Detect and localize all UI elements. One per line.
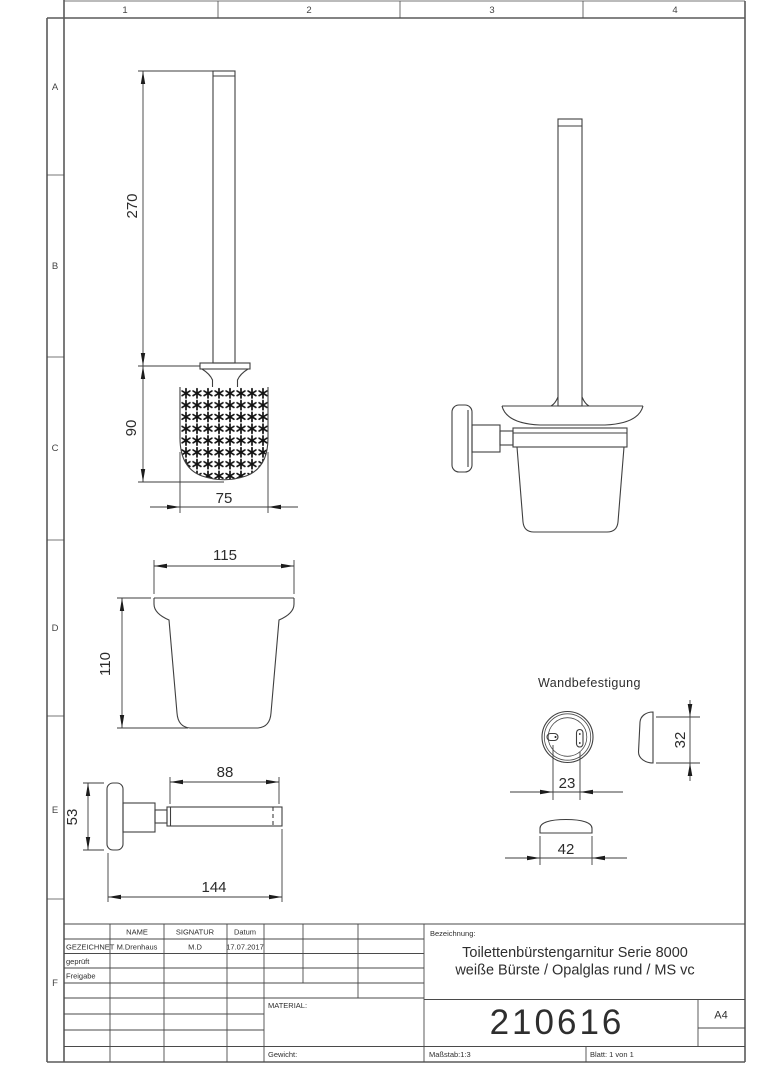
brush-head-bristles [180,387,268,480]
dim-hole-spacing: 23 [510,745,623,800]
grid-column-label: 3 [489,5,494,16]
dim-label-144: 144 [201,879,226,896]
dim-label-42: 42 [558,841,575,858]
mount-ring-outer [542,712,593,763]
dim-handle-length: 270 [124,71,213,366]
brush-handle [213,71,235,363]
brush-flange-disc [200,363,250,369]
dim-label-88: 88 [217,764,234,781]
assembly-handle [558,119,582,406]
assembly-holder-ring [513,428,627,447]
grid-row-label: A [52,82,59,93]
designation-line1: Toilettenbürstengarnitur Serie 8000 [462,945,688,961]
assembly-handle-flare [551,397,589,406]
row-gezeichnet-signatur: M.D [188,943,202,952]
assembly-glass [517,447,624,532]
mount-hole-left-dot [555,736,557,738]
header-name: NAME [126,928,148,937]
holder-arm [167,807,282,826]
row-gezeichnet-datum: 17.07.2017 [226,943,264,952]
gewicht-label: Gewicht: [268,1050,297,1059]
view-holder-side: 88 53 144 [64,764,282,902]
grid-column-label: 4 [672,5,677,16]
view-wall-mount-detail: Wandbefestigung 23 32 [505,676,700,865]
assembly-lid [502,406,643,425]
wall-mount-title: Wandbefestigung [538,676,641,690]
scale-label: Maßstab:1:3 [429,1050,471,1059]
header-signatur: SIGNATUR [176,928,215,937]
brush-flange-neck [202,369,248,387]
dim-label-75: 75 [216,490,233,507]
row-geprueft-label: geprüft [66,957,90,966]
designation-line2: weiße Bürste / Opalglas rund / MS vc [454,963,694,979]
dim-glass-height: 110 [97,598,188,728]
dim-label-53: 53 [64,809,81,826]
paper-format: A4 [714,1010,727,1022]
dim-cap-width: 42 [505,836,627,865]
view-glass-tumbler: 115 110 [97,547,294,728]
row-gezeichnet-label: GEZEICHNET [66,943,115,952]
row-freigabe-label: Freigabe [66,972,96,981]
grid-row-label: E [52,805,58,816]
mount-ring-inner [548,718,587,757]
assembly-wall-plate [452,405,472,472]
dim-label-115: 115 [213,547,237,564]
grid-row-label: D [52,623,59,634]
grid-row-label: F [52,978,58,989]
dim-arm-length: 88 [170,764,279,804]
view-brush-assembly [452,119,643,532]
glass-outline [154,598,294,728]
grid-row-label: B [52,261,58,272]
drawing-sheet: 1 2 3 4 A B C D E F [0,0,764,1080]
dim-total-depth: 144 [108,829,282,902]
grid-column-label: 1 [122,5,127,16]
material-label: MATERIAL: [268,1001,307,1010]
row-gezeichnet-name: M.Drenhaus [117,943,158,952]
technical-drawing: 1 2 3 4 A B C D E F [0,0,764,1080]
holder-block [123,803,155,832]
dim-mount-depth: 32 [656,700,700,781]
mount-cap [540,820,592,834]
grid-row-label: C [52,443,59,454]
assembly-arm-block [472,425,500,452]
mount-slot-dot [579,742,581,744]
dim-label-90: 90 [123,420,140,437]
view-brush-front: 270 90 75 [123,71,298,513]
title-block: NAME SIGNATUR Datum GEZEICHNET M.Drenhau… [64,924,745,1062]
dim-label-270: 270 [124,193,141,218]
sheet-label: Blatt: 1 von 1 [590,1050,634,1059]
part-number: 210616 [490,1003,625,1042]
mount-ring-mid [544,714,590,760]
assembly-arm-neck [500,431,513,445]
header-datum: Datum [234,928,256,937]
dim-glass-width: 115 [154,547,294,594]
drawing-frame: 1 2 3 4 A B C D E F [47,0,745,1062]
mount-slot-right [577,730,584,748]
dim-label-32: 32 [672,732,689,749]
mount-side-profile [639,712,654,763]
grid-column-label: 2 [306,5,311,16]
dim-plate-height: 53 [64,783,104,850]
holder-neck [155,810,167,823]
mount-slot-dot [579,733,581,735]
dim-label-110: 110 [97,652,114,676]
bezeichnung-label: Bezeichnung: [430,929,475,938]
dim-label-23: 23 [559,775,576,792]
holder-wall-plate [107,783,123,850]
